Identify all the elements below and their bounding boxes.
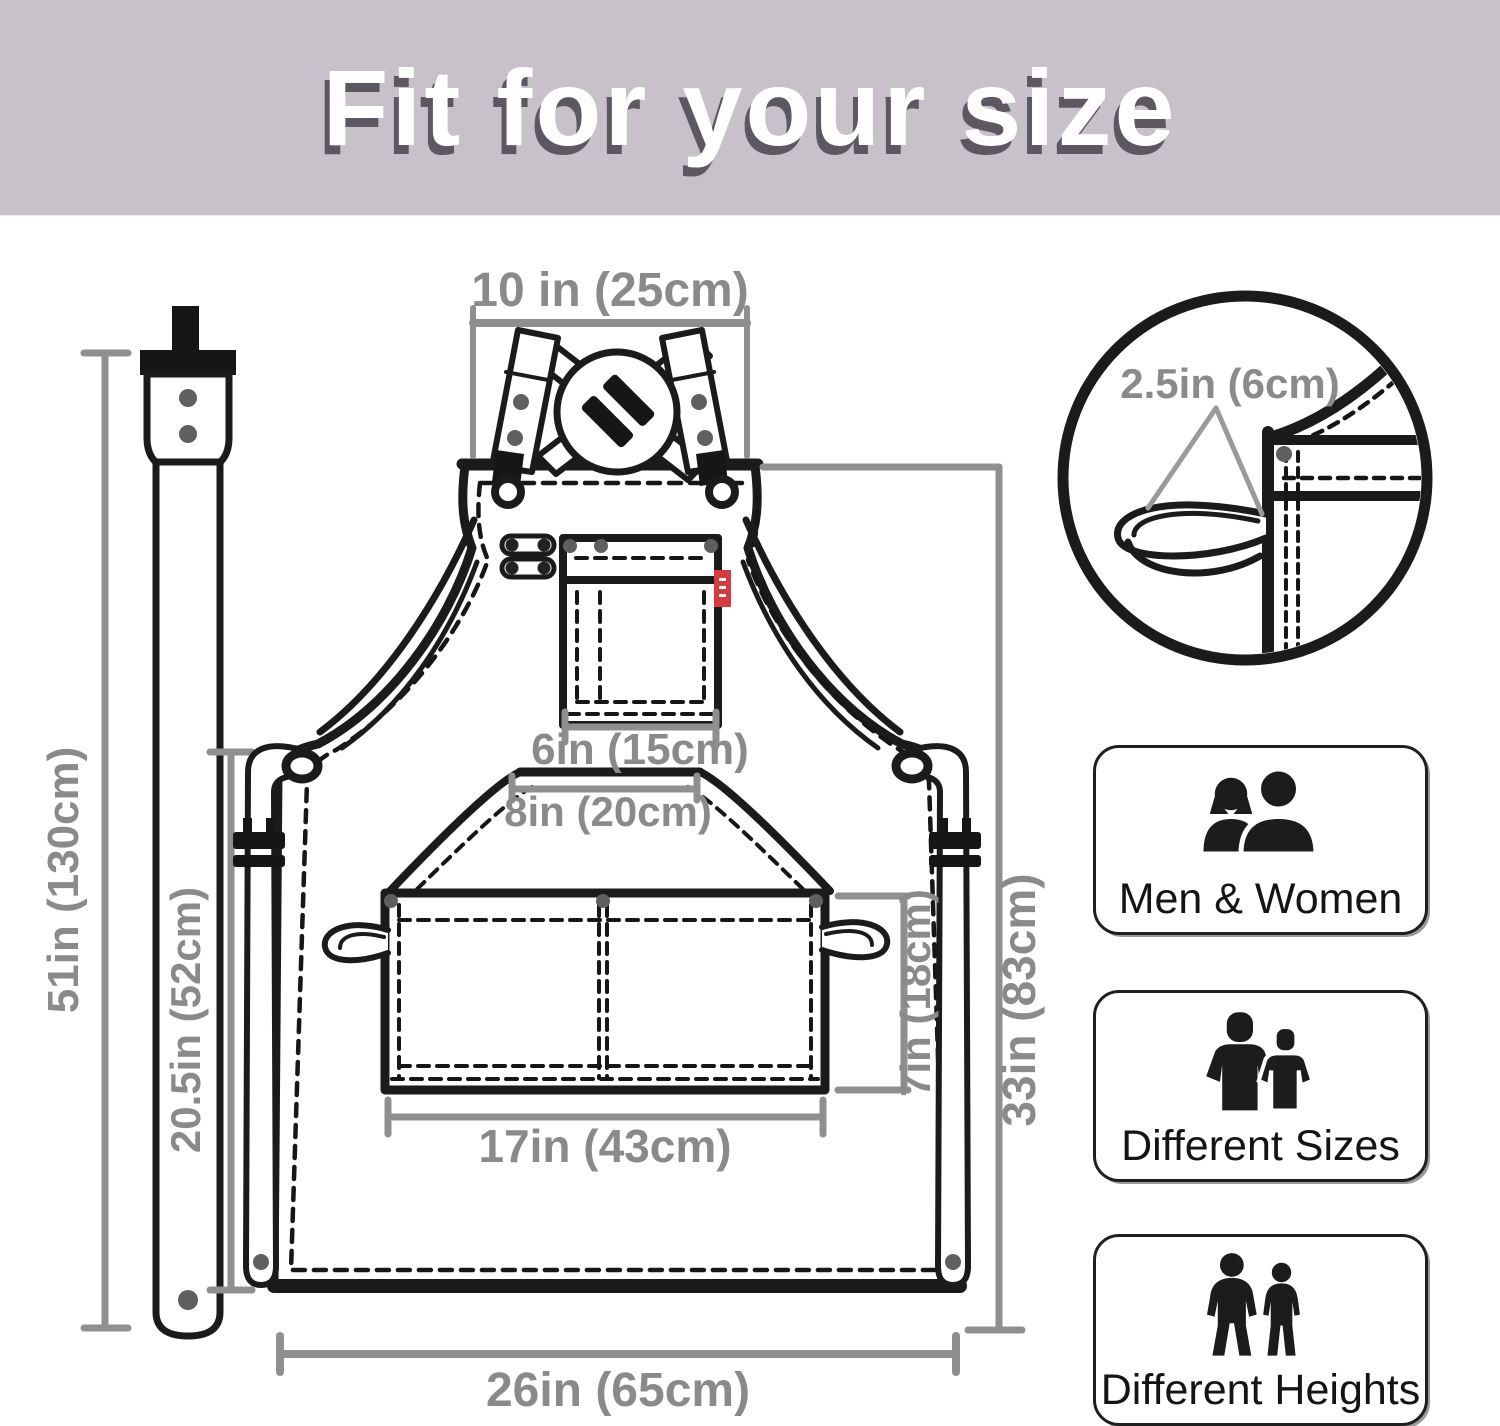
label-strap-length: 51in (130cm) — [39, 747, 88, 1014]
towel-loop-left — [325, 925, 388, 960]
feature-box-different-sizes: Different Sizes — [1093, 990, 1428, 1182]
waist-grommet-left — [286, 753, 318, 779]
label-bottom-width: 26in (65cm) — [486, 1364, 750, 1417]
feature-label: Men & Women — [1119, 877, 1403, 922]
feature-label: Different Heights — [1101, 1368, 1420, 1413]
feature-box-different-heights: Different Heights — [1093, 1234, 1428, 1426]
dimension-strap-length — [84, 353, 128, 1328]
label-side-height: 20.5in (52cm) — [162, 887, 209, 1153]
different-sizes-icon — [1191, 993, 1331, 1124]
detail-circle — [1063, 296, 1452, 664]
bib-grommet-right — [709, 479, 735, 505]
brand-tag — [714, 570, 731, 607]
men-women-icon — [1186, 748, 1336, 877]
label-neck-width: 10 in (25cm) — [471, 264, 748, 317]
feature-label: Different Sizes — [1121, 1124, 1400, 1169]
waist-grommet-right — [896, 753, 928, 779]
label-loop-detail: 2.5in (6cm) — [1120, 360, 1339, 407]
apron-dimension-diagram: 10 in (25cm) 2.5in (6cm) 6in (15cm) 8in … — [0, 0, 1500, 1426]
feature-box-men-women: Men & Women — [1093, 745, 1428, 935]
neck-strap-unrolled — [140, 306, 236, 1336]
label-pocket-width: 17in (43cm) — [478, 1120, 731, 1172]
label-body-height: 33in (83cm) — [993, 873, 1045, 1126]
label-pocket-top-width: 8in (20cm) — [504, 788, 712, 835]
bib-grommet-left — [495, 479, 521, 505]
label-chest-pocket-width: 6in (15cm) — [531, 725, 749, 774]
different-heights-icon — [1196, 1237, 1326, 1368]
label-pocket-height: 7in (18cm) — [892, 889, 939, 1097]
towel-loop-right — [822, 922, 887, 957]
infographic-page: Fit for your size — [0, 0, 1500, 1426]
